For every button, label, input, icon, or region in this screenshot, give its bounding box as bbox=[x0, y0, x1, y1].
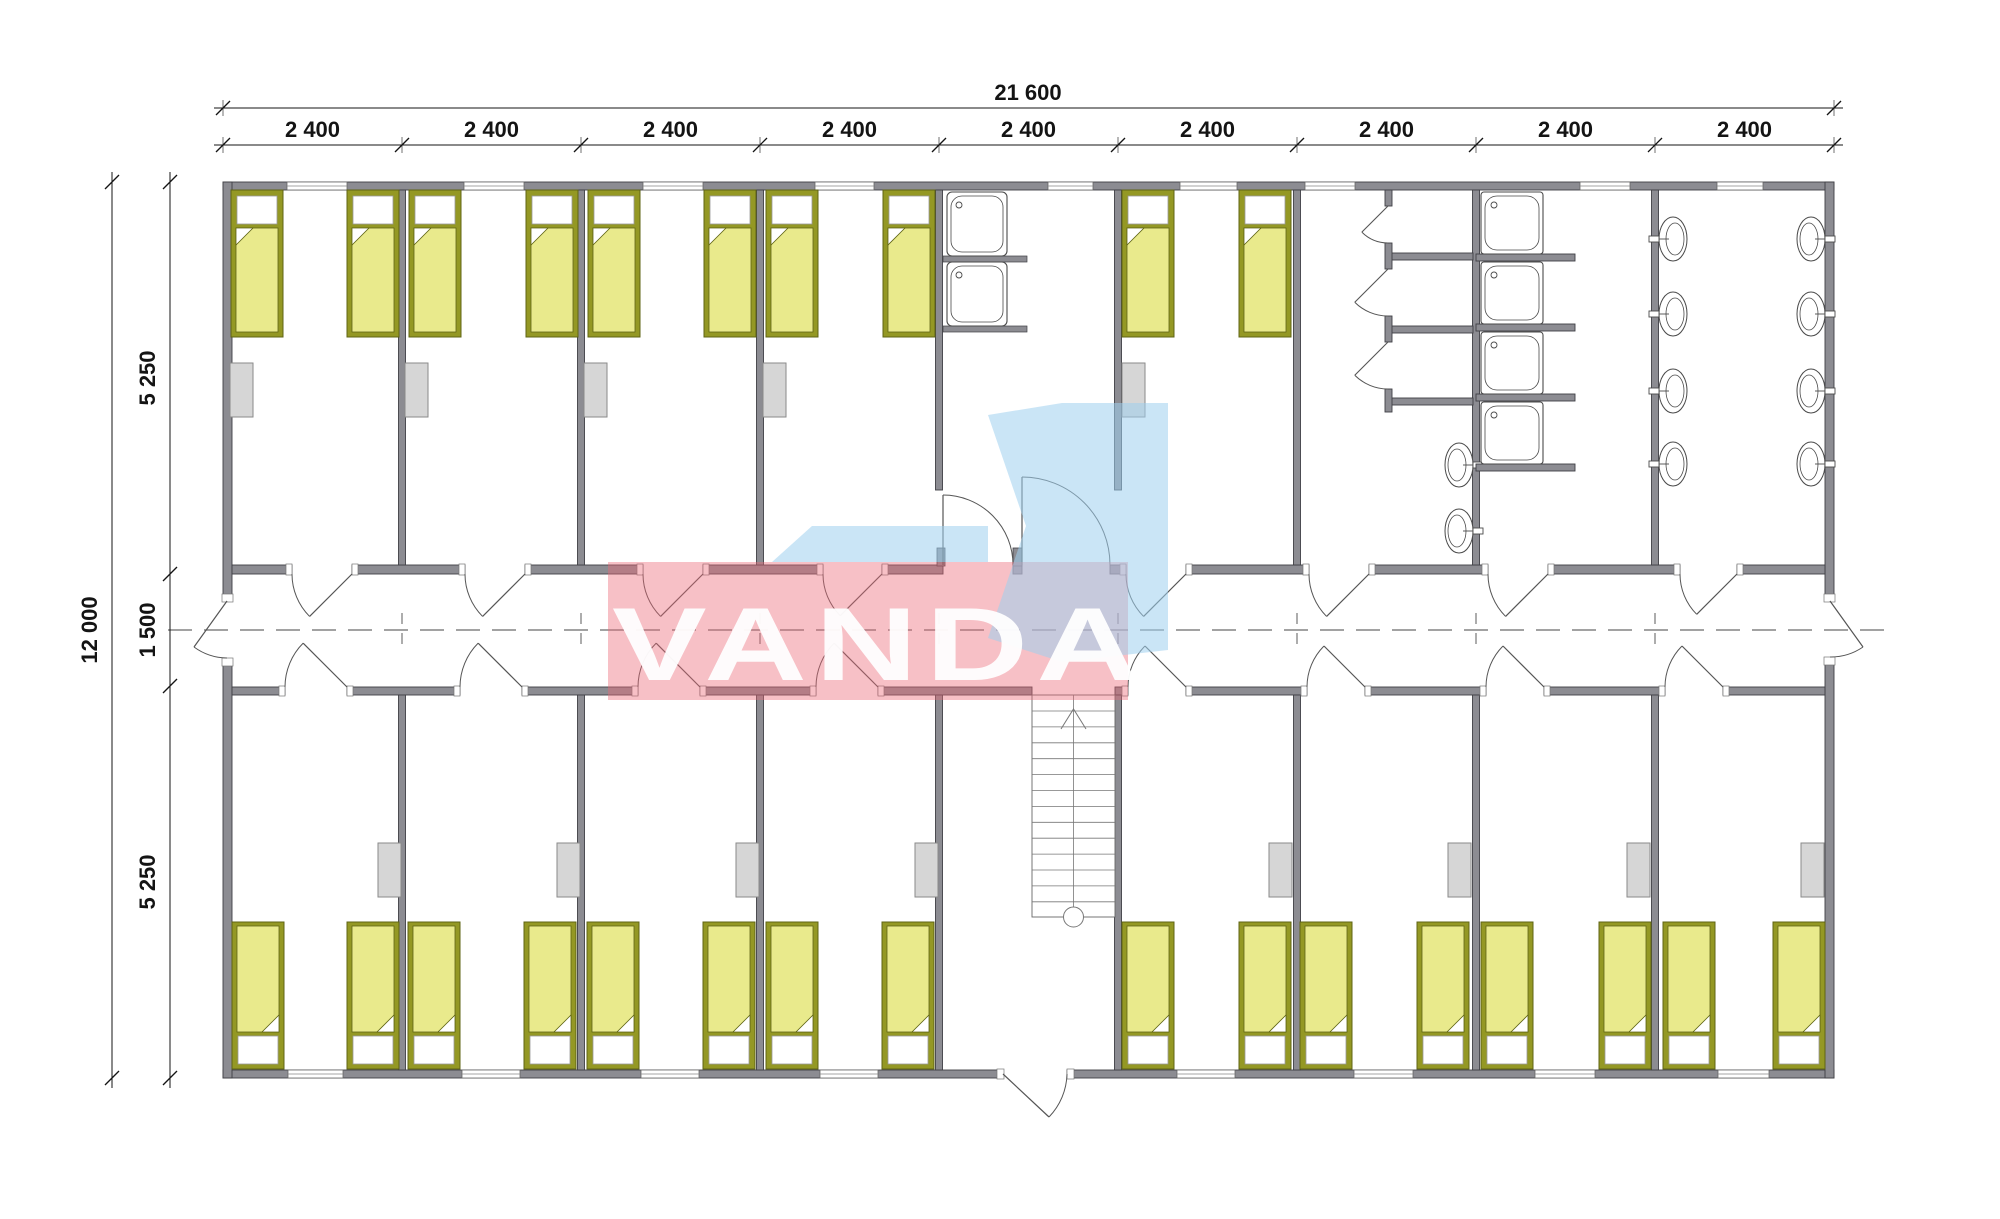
door-swing-arc bbox=[285, 643, 303, 687]
bed-pillow bbox=[888, 1036, 928, 1064]
door-leaf bbox=[483, 574, 525, 616]
door-leaf bbox=[1324, 646, 1365, 687]
door-jamb bbox=[1482, 564, 1488, 575]
door-leaf bbox=[1697, 574, 1737, 614]
bed bbox=[1417, 922, 1469, 1069]
corridor-wall-top bbox=[232, 565, 292, 574]
corridor-wall-bottom bbox=[232, 687, 285, 695]
door-swing-arc bbox=[194, 647, 227, 658]
bed bbox=[1239, 922, 1291, 1069]
bed-blanket bbox=[236, 228, 278, 332]
door-jamb bbox=[525, 564, 531, 575]
door-jamb bbox=[1186, 686, 1192, 696]
bed bbox=[704, 190, 756, 337]
stall-door-swing-arc bbox=[1355, 302, 1388, 316]
stall-divider bbox=[1388, 326, 1473, 333]
door-swing-arc bbox=[460, 643, 478, 687]
door-jamb bbox=[1674, 564, 1680, 575]
door-jamb bbox=[222, 658, 233, 666]
door-jamb bbox=[1301, 686, 1307, 696]
bed bbox=[1481, 922, 1533, 1069]
bed bbox=[347, 190, 399, 337]
shower-tray bbox=[1481, 402, 1543, 464]
bed-blanket bbox=[1244, 926, 1286, 1032]
stall-door-leaf bbox=[1355, 342, 1388, 375]
door-jamb bbox=[454, 686, 460, 696]
door-jamb bbox=[1186, 564, 1192, 575]
partition-wall-bottom bbox=[1294, 695, 1301, 1070]
bed-blanket bbox=[352, 926, 394, 1032]
bed-pillow bbox=[1669, 1036, 1709, 1064]
bed-pillow bbox=[530, 1036, 570, 1064]
door-leaf bbox=[194, 601, 227, 647]
door-leaf bbox=[1830, 601, 1863, 647]
dimension-label: 2 400 bbox=[1001, 117, 1056, 142]
counter-edge bbox=[943, 256, 1027, 262]
stall-front-stub bbox=[1385, 190, 1392, 206]
bed bbox=[1773, 922, 1825, 1069]
dimension-label: 21 600 bbox=[994, 80, 1061, 105]
bed-pillow bbox=[353, 196, 393, 224]
corridor-wall-top bbox=[1369, 565, 1488, 574]
door-jamb bbox=[1723, 686, 1729, 696]
bed-blanket bbox=[593, 228, 635, 332]
dimension-label: 2 400 bbox=[285, 117, 340, 142]
floor-plan-canvas: 21 6002 4002 4002 4002 4002 4002 4002 40… bbox=[0, 0, 2000, 1219]
bed-blanket bbox=[771, 926, 813, 1032]
bed-pillow bbox=[353, 1036, 393, 1064]
partition-wall-top bbox=[399, 190, 406, 565]
basin-tap-icon bbox=[1825, 461, 1835, 467]
partition-wall-bottom bbox=[1473, 695, 1480, 1070]
bed-blanket bbox=[1486, 926, 1528, 1032]
bed-blanket bbox=[1305, 926, 1347, 1032]
bed-pillow bbox=[889, 196, 929, 224]
bed bbox=[408, 922, 460, 1069]
partition-wall-bottom bbox=[1115, 695, 1122, 1070]
corridor-wall-top bbox=[1548, 565, 1680, 574]
stall-door-leaf bbox=[1355, 269, 1388, 302]
partition-wall-top bbox=[1652, 190, 1659, 565]
dimension-label: 2 400 bbox=[1538, 117, 1593, 142]
bed bbox=[524, 922, 576, 1069]
partition-wall-top bbox=[936, 190, 943, 490]
exterior-wall-right bbox=[1825, 658, 1834, 1078]
bed-pillow bbox=[1245, 196, 1285, 224]
door-leaf bbox=[310, 574, 352, 616]
stair-start-marker bbox=[1064, 907, 1084, 927]
door-leaf bbox=[478, 643, 522, 687]
bed-pillow bbox=[237, 196, 277, 224]
door-jamb bbox=[1737, 564, 1743, 575]
bed-blanket bbox=[529, 926, 571, 1032]
corridor-wall-bottom bbox=[1544, 687, 1665, 695]
bed-blanket bbox=[1127, 228, 1169, 332]
bed-blanket bbox=[771, 228, 813, 332]
bed bbox=[231, 190, 283, 337]
bed-blanket bbox=[1422, 926, 1464, 1032]
bed bbox=[883, 190, 935, 337]
dimension-label: 5 250 bbox=[135, 854, 160, 909]
shower-tray bbox=[1481, 262, 1543, 324]
bed-pillow bbox=[1128, 196, 1168, 224]
basin-tap-icon bbox=[1649, 461, 1659, 467]
door-jamb bbox=[352, 564, 358, 575]
door-jamb bbox=[1544, 686, 1550, 696]
door-leaf bbox=[1003, 1074, 1049, 1117]
basin-tap-icon bbox=[1649, 388, 1659, 394]
bed-blanket bbox=[1604, 926, 1646, 1032]
dimension-label: 2 400 bbox=[1717, 117, 1772, 142]
stall-door-swing-arc bbox=[1362, 232, 1388, 243]
door-swing-arc bbox=[1830, 647, 1863, 657]
shower-screen bbox=[1476, 254, 1575, 261]
partition-wall-top bbox=[1473, 190, 1480, 565]
door-jamb bbox=[1548, 564, 1554, 575]
bed-blanket bbox=[709, 228, 751, 332]
bed-pillow bbox=[1245, 1036, 1285, 1064]
wardrobe bbox=[557, 843, 580, 897]
bed bbox=[1599, 922, 1651, 1069]
dimension-label: 12 000 bbox=[77, 596, 102, 663]
bed bbox=[347, 922, 399, 1069]
shower-screen bbox=[1476, 324, 1575, 331]
corridor-wall-top bbox=[352, 565, 465, 574]
door-jamb bbox=[1824, 657, 1835, 665]
door-leaf bbox=[1503, 646, 1544, 687]
bed-pillow bbox=[415, 196, 455, 224]
door-swing-arc bbox=[1309, 574, 1327, 616]
door-swing-arc bbox=[1486, 646, 1503, 687]
sink-unit bbox=[947, 192, 1007, 256]
stall-front-stub bbox=[1385, 316, 1392, 342]
bed-blanket bbox=[237, 926, 279, 1032]
wardrobe bbox=[1448, 843, 1471, 897]
dimension-label: 2 400 bbox=[464, 117, 519, 142]
bed bbox=[587, 922, 639, 1069]
staircase bbox=[1032, 695, 1115, 927]
sink-unit bbox=[947, 262, 1007, 326]
partition-wall-bottom bbox=[1652, 695, 1659, 1070]
bed-pillow bbox=[414, 1036, 454, 1064]
door-jamb bbox=[522, 686, 528, 696]
door-swing-arc bbox=[1307, 646, 1324, 687]
door-leaf bbox=[1327, 574, 1369, 616]
bed-blanket bbox=[708, 926, 750, 1032]
basin-tap-icon bbox=[1825, 388, 1835, 394]
stall-door-leaf bbox=[1362, 206, 1388, 232]
wardrobe bbox=[915, 843, 938, 897]
bed-pillow bbox=[1128, 1036, 1168, 1064]
bed bbox=[703, 922, 755, 1069]
bed-pillow bbox=[1306, 1036, 1346, 1064]
watermark: VANDA bbox=[608, 403, 1168, 703]
corridor-wall-top bbox=[1737, 565, 1825, 574]
floor-plan-sheet: 21 6002 4002 4002 4002 4002 4002 4002 40… bbox=[0, 0, 2000, 1219]
wardrobe bbox=[1269, 843, 1292, 897]
shower-screen bbox=[1476, 464, 1575, 471]
stall-door-swing-arc bbox=[1355, 375, 1388, 389]
bed bbox=[1663, 922, 1715, 1069]
door-jamb bbox=[1303, 564, 1309, 575]
stall-front-stub bbox=[1385, 243, 1392, 269]
stall-divider bbox=[1388, 398, 1473, 405]
bed-blanket bbox=[1778, 926, 1820, 1032]
bed-pillow bbox=[238, 1036, 278, 1064]
bed-pillow bbox=[532, 196, 572, 224]
door-swing-arc bbox=[1488, 574, 1506, 616]
door-jamb bbox=[1365, 686, 1371, 696]
bed bbox=[409, 190, 461, 337]
bed-blanket bbox=[413, 926, 455, 1032]
dimension-label: 2 400 bbox=[822, 117, 877, 142]
wardrobe bbox=[230, 363, 253, 417]
wardrobe bbox=[1627, 843, 1650, 897]
bed-blanket bbox=[887, 926, 929, 1032]
bed-blanket bbox=[592, 926, 634, 1032]
bed-pillow bbox=[594, 196, 634, 224]
wardrobe bbox=[1801, 843, 1824, 897]
corridor-wall-bottom bbox=[1186, 687, 1307, 695]
shower-tray bbox=[1481, 192, 1543, 254]
bed-pillow bbox=[1487, 1036, 1527, 1064]
bed-pillow bbox=[772, 196, 812, 224]
bed-pillow bbox=[709, 1036, 749, 1064]
bed-blanket bbox=[1127, 926, 1169, 1032]
door-leaf bbox=[1145, 646, 1186, 687]
door-swing-arc bbox=[1680, 574, 1697, 614]
bed-pillow bbox=[1605, 1036, 1645, 1064]
wardrobe bbox=[378, 843, 401, 897]
corridor-wall-top bbox=[1186, 565, 1309, 574]
door-jamb bbox=[1067, 1069, 1074, 1079]
basin-tap-icon bbox=[1649, 311, 1659, 317]
shower-screen bbox=[1476, 394, 1575, 401]
bed-blanket bbox=[414, 228, 456, 332]
door-swing-arc bbox=[292, 574, 310, 616]
partition-wall-top bbox=[578, 190, 585, 565]
dimension-label: 2 400 bbox=[1180, 117, 1235, 142]
bed bbox=[766, 922, 818, 1069]
bed bbox=[526, 190, 578, 337]
bed bbox=[1122, 190, 1174, 337]
door-leaf bbox=[303, 643, 347, 687]
bed bbox=[1122, 922, 1174, 1069]
basin-tap-icon bbox=[1473, 528, 1483, 534]
watermark-blue-shape bbox=[772, 526, 988, 562]
shower-tray bbox=[1481, 332, 1543, 394]
door-jamb bbox=[347, 686, 353, 696]
bed bbox=[882, 922, 934, 1069]
corridor-wall-bottom bbox=[1365, 687, 1486, 695]
door-jamb bbox=[1369, 564, 1375, 575]
wardrobe bbox=[584, 363, 607, 417]
bed bbox=[1300, 922, 1352, 1069]
door-jamb bbox=[279, 686, 285, 696]
corridor-wall-bottom bbox=[347, 687, 460, 695]
door-jamb bbox=[286, 564, 292, 575]
watermark-text: VANDA bbox=[612, 587, 1147, 703]
bed-pillow bbox=[1779, 1036, 1819, 1064]
bed bbox=[588, 190, 640, 337]
door-jamb bbox=[1824, 594, 1835, 602]
stall-divider bbox=[1388, 253, 1473, 260]
wardrobe bbox=[763, 363, 786, 417]
door-leaf bbox=[1506, 574, 1548, 616]
bed bbox=[1239, 190, 1291, 337]
partition-wall-top bbox=[1294, 190, 1301, 565]
corridor-wall-bottom bbox=[1723, 687, 1825, 695]
bed-blanket bbox=[531, 228, 573, 332]
bed-pillow bbox=[772, 1036, 812, 1064]
bed-pillow bbox=[710, 196, 750, 224]
door-jamb bbox=[459, 564, 465, 575]
partition-wall-top bbox=[757, 190, 764, 565]
bed bbox=[232, 922, 284, 1069]
dimension-label: 2 400 bbox=[643, 117, 698, 142]
door-jamb bbox=[222, 594, 233, 602]
wardrobe bbox=[405, 363, 428, 417]
basin-tap-icon bbox=[1825, 236, 1835, 242]
door-swing-arc bbox=[465, 574, 483, 616]
bed-blanket bbox=[1244, 228, 1286, 332]
basin-tap-icon bbox=[1649, 236, 1659, 242]
bed-blanket bbox=[888, 228, 930, 332]
dimension-label: 2 400 bbox=[1359, 117, 1414, 142]
wardrobe bbox=[736, 843, 759, 897]
exterior-wall-left bbox=[223, 660, 232, 1078]
bed-pillow bbox=[593, 1036, 633, 1064]
bed-blanket bbox=[1668, 926, 1710, 1032]
door-leaf bbox=[1682, 646, 1723, 687]
dimension-label: 1 500 bbox=[135, 602, 160, 657]
dimension-label: 5 250 bbox=[135, 350, 160, 405]
bed bbox=[766, 190, 818, 337]
bed-pillow bbox=[1423, 1036, 1463, 1064]
basin-tap-icon bbox=[1825, 311, 1835, 317]
door-jamb bbox=[997, 1069, 1004, 1079]
counter-edge bbox=[943, 326, 1027, 332]
door-swing-arc bbox=[1049, 1074, 1067, 1117]
door-swing-arc bbox=[1665, 646, 1682, 687]
door-jamb bbox=[1659, 686, 1665, 696]
stall-front-stub bbox=[1385, 389, 1392, 412]
door-jamb bbox=[1480, 686, 1486, 696]
bed-blanket bbox=[352, 228, 394, 332]
